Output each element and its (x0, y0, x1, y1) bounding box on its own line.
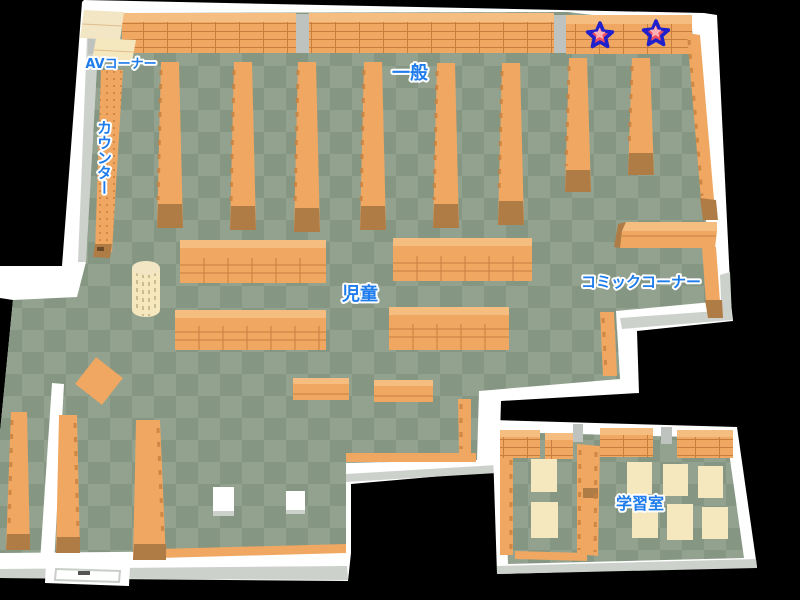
floor-map-svg: AVコーナー 一般 カウンター 児童 コミックコーナー 学習室 (0, 0, 800, 600)
label-children: 児童 (341, 283, 378, 305)
bookshelf-row (628, 58, 654, 175)
study-shelf-unit (600, 428, 653, 457)
low-shelf (389, 307, 509, 350)
entrance-door (45, 563, 130, 586)
low-shelf (393, 238, 532, 281)
kiosk-box (286, 491, 305, 514)
bookshelf-row (498, 63, 524, 225)
library-floor-map: AVコーナー 一般 カウンター 児童 コミックコーナー 学習室 (0, 0, 800, 600)
bookshelf-row (565, 58, 591, 192)
bookshelf-row (294, 62, 320, 232)
kiosk-box (213, 487, 234, 516)
low-bench (293, 378, 349, 400)
study-doorway (573, 424, 583, 442)
wall-pillar (296, 14, 309, 53)
label-counter: カウンター (95, 120, 113, 195)
bookshelf-row (230, 62, 256, 230)
label-study-room: 学習室 (616, 494, 664, 513)
study-partition-shelf (577, 444, 600, 556)
bookshelf-row (157, 62, 183, 228)
label-comic-corner: コミックコーナー (581, 273, 701, 291)
bookshelf-row (433, 63, 459, 228)
low-bench (374, 380, 433, 402)
low-shelf (180, 240, 326, 283)
rotating-rack (132, 261, 160, 317)
study-shelf-unit (545, 433, 573, 459)
low-shelf (175, 310, 326, 350)
label-general: 一般 (392, 62, 428, 84)
study-shelf-unit (500, 430, 540, 458)
bookshelf-row (56, 415, 80, 553)
comic-corner-shelf (614, 222, 717, 248)
bookshelf-row (360, 62, 386, 230)
label-av-corner: AVコーナー (85, 57, 156, 72)
door-handle (78, 571, 90, 575)
wall-pillar (554, 15, 566, 53)
study-shelf-unit (677, 430, 733, 458)
study-doorway (661, 427, 672, 444)
